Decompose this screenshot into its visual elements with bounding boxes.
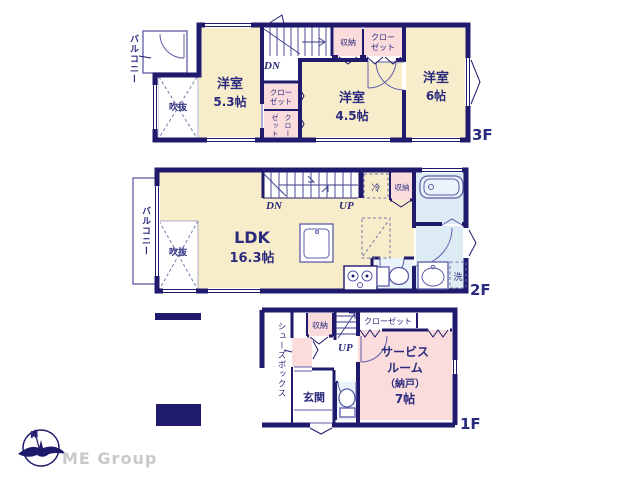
brand-area: N ME Group xyxy=(18,429,157,468)
stairs-1f xyxy=(336,313,357,338)
room2-size: 4.5帖 xyxy=(335,108,368,123)
toilet-1f xyxy=(339,389,355,417)
laundry-label: 洗 xyxy=(453,271,462,283)
shoe-box-label: シューズボックス xyxy=(276,322,286,398)
floor-1f: シューズボックス 収納 UP クローゼット 玄関 サービス ルーム （納戸） 7… xyxy=(155,310,481,434)
ldk-size: 16.3帖 xyxy=(229,250,274,266)
storage-label-1f: 収納 xyxy=(312,320,328,330)
ldk-name: LDK xyxy=(234,228,270,247)
closet-top-l2: ゼット xyxy=(371,42,395,52)
shoe-box xyxy=(292,338,312,367)
closet-low-col2: ゼット xyxy=(271,113,279,138)
service-room-l4: 7帖 xyxy=(395,391,415,406)
entrance-door-mark xyxy=(310,428,332,434)
fridge-label: 冷 xyxy=(371,182,380,194)
balcony-label-2f: バルコニー xyxy=(140,206,151,256)
service-room-l2: ルーム xyxy=(387,361,423,375)
floor-label-1f: 1F xyxy=(460,415,481,433)
closet-mid-l1: クロー xyxy=(270,88,293,97)
stairs-up-label-2f: UP xyxy=(339,200,354,212)
brand-name: ME Group xyxy=(62,449,157,468)
floor-2f: バルコニー 吹抜 LDK 16.3帖 冷 収納 洗 DN UP 2F xyxy=(133,167,491,299)
room-1f-service xyxy=(358,330,452,420)
closet-low-col1: クロー xyxy=(284,114,292,138)
toilet-2f xyxy=(377,267,409,286)
floor-label-2f: 2F xyxy=(470,281,491,299)
stairs-dn-label-3f: DN xyxy=(263,60,281,72)
service-room-l3: （納戸） xyxy=(385,377,425,390)
compass-north-label: N xyxy=(30,430,38,441)
bathtub xyxy=(420,176,463,198)
storage-label-2f: 収納 xyxy=(395,182,410,192)
balcony-3f xyxy=(139,31,187,73)
stairs-3f xyxy=(264,15,326,56)
room2-name: 洋室 xyxy=(339,90,365,106)
storage-label-3f: 収納 xyxy=(340,37,356,47)
entrance-label: 玄関 xyxy=(303,390,325,404)
floorplan-page: バルコニー 吹抜 洋室 5.3帖 洋室 4.5帖 洋室 6帖 収納 クロー ゼッ… xyxy=(0,0,640,480)
closet-top-l1: クロー xyxy=(371,33,395,42)
stairs-up-label-1f: UP xyxy=(338,342,353,354)
room3-size: 6帖 xyxy=(426,88,446,103)
windows-1f xyxy=(452,360,458,374)
room3-name: 洋室 xyxy=(423,70,449,86)
service-room-l1: サービス xyxy=(381,344,429,359)
site-wall-upper xyxy=(155,313,201,320)
void-label-2f: 吹抜 xyxy=(169,246,188,258)
window-chevron xyxy=(471,60,480,104)
floor-3f: バルコニー 吹抜 洋室 5.3帖 洋室 4.5帖 洋室 6帖 収納 クロー ゼッ… xyxy=(128,15,493,144)
stairs-dn-label-2f: DN xyxy=(265,200,283,212)
floor-label-3f: 3F xyxy=(472,126,493,144)
balcony-label-3f: バルコニー xyxy=(128,34,139,84)
void-label-3f: 吹抜 xyxy=(169,101,188,113)
floorplan-canvas: バルコニー 吹抜 洋室 5.3帖 洋室 4.5帖 洋室 6帖 収納 クロー ゼッ… xyxy=(0,0,640,480)
room-3f-closet-low xyxy=(264,111,298,138)
room1-name: 洋室 xyxy=(217,76,243,92)
site-wall-lower xyxy=(156,404,201,426)
room1-size: 5.3帖 xyxy=(213,94,246,109)
closet-label-1f: クローゼット xyxy=(364,316,412,326)
closet-mid-l2: ゼット xyxy=(270,96,293,106)
